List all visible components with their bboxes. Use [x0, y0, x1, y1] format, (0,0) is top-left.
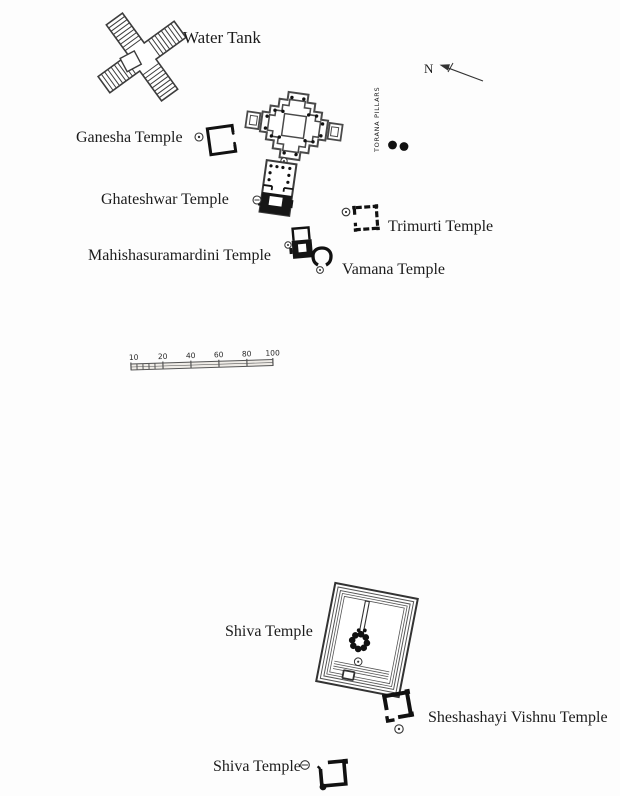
scale-tick-label: 80 [242, 349, 252, 358]
torana-pillars: TORANA PILLARS [373, 87, 408, 153]
water-tank-plan [76, 0, 207, 123]
mahishasuramardini-temple-plan [288, 227, 314, 259]
torana-pillar-dot [400, 142, 409, 151]
enclosure-entrance [342, 670, 354, 680]
shiva-temple-south-label: Shiva Temple [213, 758, 301, 775]
north-label: N [424, 61, 434, 76]
reference-marker-ghateshwar [253, 196, 261, 204]
scale-tick-label: 40 [186, 351, 196, 360]
scale-tick-label: 10 [129, 353, 139, 362]
vamana-temple-label: Vamana Temple [342, 261, 445, 278]
scale-tick-label: 20 [158, 352, 168, 361]
vamana-temple-plan [313, 248, 331, 265]
shiva-temple-south-plan [317, 759, 350, 791]
ghateshwar-hall-plan [257, 160, 298, 216]
reference-marker-mahishasuramardini [285, 242, 291, 248]
ghateshwar-temple-label: Ghateshwar Temple [101, 191, 229, 208]
reference-marker-shiva-south [301, 761, 310, 770]
ganesha-temple-plan [207, 125, 237, 154]
shiva-temple-enclosure-plan [316, 583, 418, 697]
site-plan-map: Water Tank N Ganesha Temple [0, 0, 620, 796]
mahishasuramardini-temple-label: Mahishasuramardini Temple [88, 247, 271, 264]
reference-marker-ganesha [195, 133, 203, 141]
water-tank-label: Water Tank [183, 28, 261, 47]
north-arrow: N [424, 61, 483, 81]
north-arrowhead-icon [440, 64, 451, 70]
ghateshwar-mandapa-plan [242, 87, 346, 166]
reference-marker-vamana [317, 267, 324, 274]
trimurti-temple-label: Trimurti Temple [388, 218, 493, 235]
scale-tick-label: 100 [265, 348, 280, 357]
scale-tick-label: 60 [214, 350, 224, 359]
torana-pillars-label: TORANA PILLARS [373, 87, 381, 153]
trimurti-temple-plan [352, 204, 380, 232]
mandapa-side-porch-east [328, 123, 343, 141]
reference-marker-sheshashayi [395, 725, 403, 733]
site-plan-page: Water Tank N Ganesha Temple [0, 0, 620, 796]
scale-bar: 10 20 40 60 80 100 [129, 348, 281, 370]
ganesha-temple-label: Ganesha Temple [76, 129, 183, 146]
mandapa-side-porch-west [245, 111, 260, 129]
shiva-temple-main-label: Shiva Temple [225, 623, 313, 640]
torana-pillar-dot [388, 141, 397, 150]
sheshashayi-vishnu-temple-label: Sheshashayi Vishnu Temple [428, 709, 608, 726]
reference-marker-trimurti [342, 208, 350, 216]
